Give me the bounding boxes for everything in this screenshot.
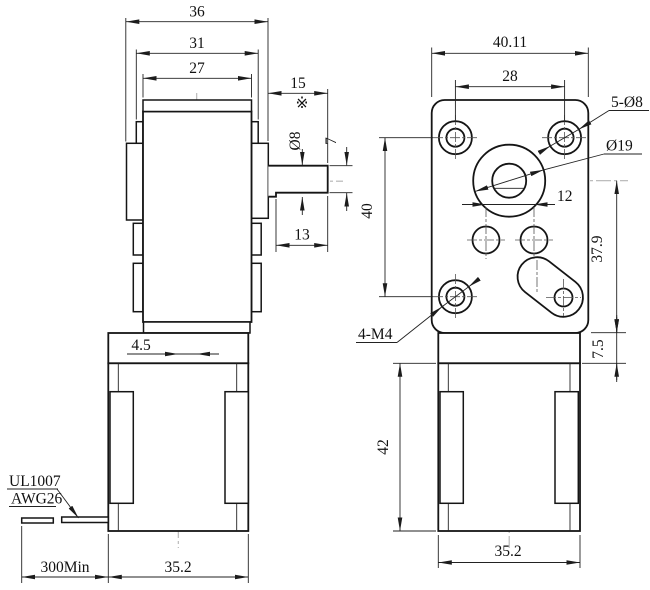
wire-spec-line1: UL1007 [9, 473, 61, 490]
dim-label-shaft-diameter: Ø8 [287, 131, 304, 150]
dim-label-40: 40 [359, 203, 376, 219]
gearmotor-dimension-drawing: 36 31 27 15 ※ Ø8 7 13 4.5 UL1007 AWG26 3… [0, 0, 650, 590]
dim-label-37-9: 37.9 [589, 235, 606, 262]
dim-label-7: 7 [323, 137, 340, 145]
dim-label-31: 31 [189, 35, 205, 52]
mount-tab-mid-left [133, 223, 143, 255]
mount-tab-low-left [133, 263, 143, 311]
dim-label-28: 28 [502, 68, 518, 85]
gear-section-side [108, 333, 248, 363]
dim-label-12: 12 [557, 188, 573, 205]
dim-label-35-2-front: 35.2 [494, 543, 521, 560]
side-boss-left [127, 143, 144, 220]
dim-label-36: 36 [189, 4, 205, 21]
gearbox-bottom-cap [144, 322, 251, 333]
motor-strip-right [225, 392, 248, 504]
gearbox-housing-side [143, 112, 252, 323]
dim-label-42: 42 [375, 439, 392, 455]
dim-label-o19: Ø19 [606, 138, 633, 155]
dim-label-7-5: 7.5 [590, 339, 607, 359]
dim-label-5-o8: 5-Ø8 [611, 94, 643, 111]
reference-mark: ※ [296, 95, 309, 112]
gearbox-top-cap [143, 100, 252, 112]
gear-section-front [438, 333, 580, 363]
dim-label-27: 27 [189, 60, 205, 77]
motor-strip-left [440, 392, 463, 504]
dim-label-4-m4: 4-M4 [358, 326, 393, 343]
shaft-boss-right [252, 143, 269, 218]
dim-label-300min: 300Min [40, 559, 89, 576]
dim-label-4-5: 4.5 [131, 337, 151, 354]
motor-strip-left [110, 392, 133, 504]
dim-label-35-2-side: 35.2 [164, 559, 191, 576]
wire-lead [62, 517, 109, 523]
motor-strip-right [555, 392, 578, 504]
technical-drawing-page: 36 31 27 15 ※ Ø8 7 13 4.5 UL1007 AWG26 3… [0, 0, 650, 590]
dim-label-13: 13 [294, 227, 310, 244]
mount-tab-mid-right [252, 223, 262, 255]
wire-lead-end [22, 518, 54, 523]
dim-label-40-11: 40.11 [493, 34, 527, 51]
dim-label-15: 15 [290, 75, 306, 92]
wire-spec-line2: AWG26 [11, 491, 63, 508]
output-shaft [268, 166, 327, 197]
mount-tab-low-right [252, 263, 262, 311]
